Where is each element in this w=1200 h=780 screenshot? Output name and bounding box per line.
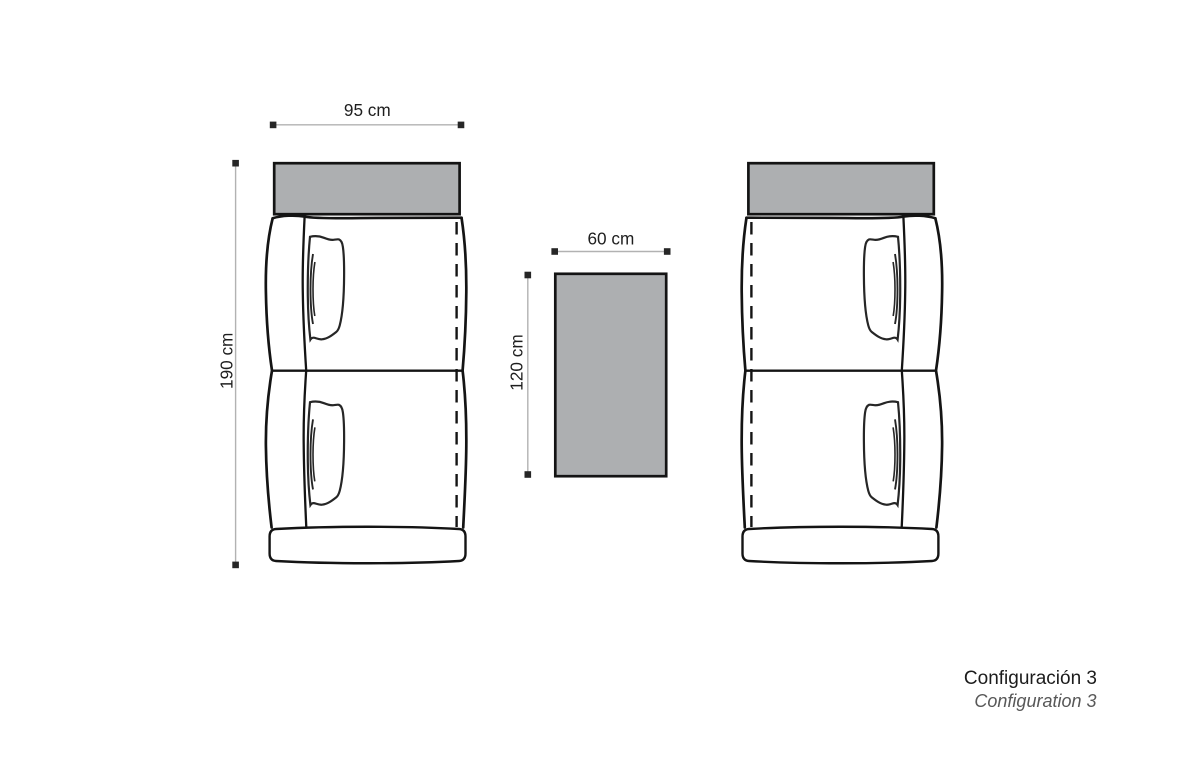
svg-text:120 cm: 120 cm: [507, 334, 527, 390]
svg-text:95 cm: 95 cm: [344, 100, 391, 120]
svg-text:Configuración 3: Configuración 3: [964, 668, 1097, 689]
svg-text:Configuration 3: Configuration 3: [974, 691, 1096, 711]
svg-text:60 cm: 60 cm: [587, 228, 634, 248]
svg-text:190 cm: 190 cm: [217, 333, 237, 389]
